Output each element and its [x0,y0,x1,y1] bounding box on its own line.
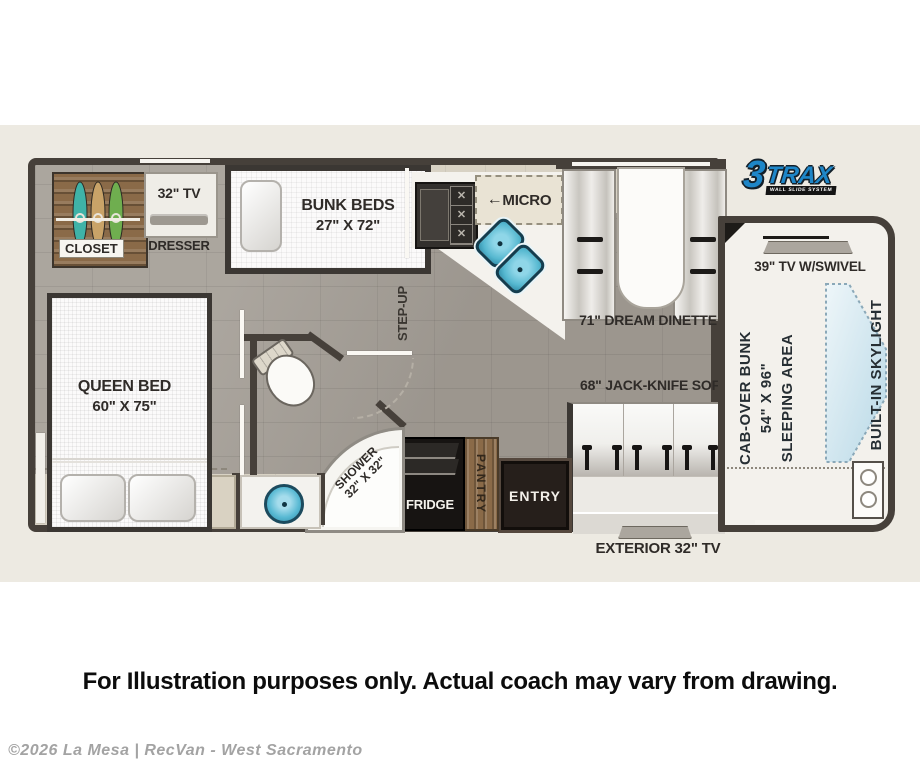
pantry-label: PANTRY [474,454,488,514]
tv-32-icon [150,214,208,225]
micro-label: MICRO [502,192,551,209]
screenshot-root: CLOSET 32" TV DRESSER BUNK BEDS 27" X 72… [0,0,920,767]
disclaimer-text: For Illustration purposes only. Actual c… [0,668,920,696]
sofa-back-cushions [573,404,725,476]
dinette-table [617,167,685,309]
window-top-1 [140,159,210,163]
vanity-sink-icon [264,484,304,524]
fridge-label: FRIDGE [401,497,459,512]
bath-pocket-door-1 [240,310,244,378]
sofa-seat [573,476,725,513]
micro-arrow-icon: ← [487,191,503,209]
exterior-tv-icon [618,526,692,539]
copyright-text: ©2026 La Mesa | RecVan - West Sacramento [8,742,363,760]
seatbelt-icon [577,269,603,274]
entry-door: ENTRY [498,458,572,533]
fridge: FRIDGE [399,437,465,531]
bed-pillow [128,474,196,522]
seatbelt-post-icon [615,450,619,470]
tv39-mount-line [763,236,829,239]
bath-pocket-door-2 [240,405,244,475]
tv39-label: 39" TV W/SWIVEL [735,259,885,274]
bed-pillow [60,474,126,522]
rv-floorplan: CLOSET 32" TV DRESSER BUNK BEDS 27" X 72… [28,158,895,532]
cab-over-bunk-label: CAB-OVER BUNK 54" X 96" SLEEPING AREA [735,283,801,513]
cupholder-icon [860,491,877,508]
burner-icons: ✕✕✕ [450,186,473,245]
queen-label-2: 60" X 75" [52,398,197,415]
exterior-tv-label: EXTERIOR 32" TV [583,540,733,557]
cupholder-icon [860,469,877,486]
bunk-label-2: 27" X 72" [283,217,413,234]
bunk-pillow [240,180,282,252]
dashboard-console [852,461,884,519]
stepup-wall [405,168,409,258]
dresser-label: DRESSER [139,238,219,253]
pantry-cabinet: PANTRY [463,437,499,531]
seatbelt-icon [577,237,603,242]
bath-vanity [240,475,321,529]
bed-side-shelf [36,433,45,523]
stepup-label: STEP-UP [395,265,410,341]
skylight-label: BUILT-IN SKYLIGHT [868,260,888,490]
coach-body-outline: CLOSET 32" TV DRESSER BUNK BEDS 27" X 72… [28,158,718,532]
logo-number: 3 [741,154,767,197]
dinette-bench-left [562,169,616,321]
queen-bed: QUEEN BED 60" X 75" [47,293,212,532]
bath-wall-diag [306,331,344,361]
seatbelt-icon [690,269,716,274]
seatbelt-icon [690,237,716,242]
closet-rod [56,218,140,221]
oven-icon [420,189,449,241]
seatbelt-post-icon [585,450,589,470]
tv-dresser-cabinet: 32" TV [144,172,218,238]
bath-door [347,351,412,355]
cab-section: 39" TV W/SWIVEL CAB-OVER BUNK 54" X 96" … [718,216,895,532]
closet-label: CLOSET [59,239,124,258]
cab-corner-shade [725,223,745,243]
entry-label: ENTRY [509,488,561,504]
window-cab-bottom [755,520,840,524]
3trax-logo: 3 TRAX WALL SLIDE SYSTEM [741,160,845,202]
tv-39-icon [763,241,853,254]
seatbelt-post-icon [685,450,689,470]
jack-knife-sofa [567,402,731,532]
bunk-beds: BUNK BEDS 27" X 72" [225,165,431,274]
queen-label-1: QUEEN BED [52,378,197,396]
dinette-label: 71" DREAM DINETTE [563,312,733,328]
stove-icon: ✕✕✕ [415,182,478,249]
tv32-label: 32" TV [146,185,212,201]
toilet-icon [246,334,326,418]
seatbelt-post-icon [711,450,715,470]
closet-cabinet: CLOSET [52,172,148,268]
microwave-zone: ← MICRO [475,175,563,225]
sofa-label: 68" JACK-KNIFE SOFA [580,377,720,393]
bunk-label-1: BUNK BEDS [283,197,413,215]
seatbelt-post-icon [635,450,639,470]
seatbelt-post-icon [665,450,669,470]
logo-tagline: WALL SLIDE SYSTEM [766,186,837,195]
